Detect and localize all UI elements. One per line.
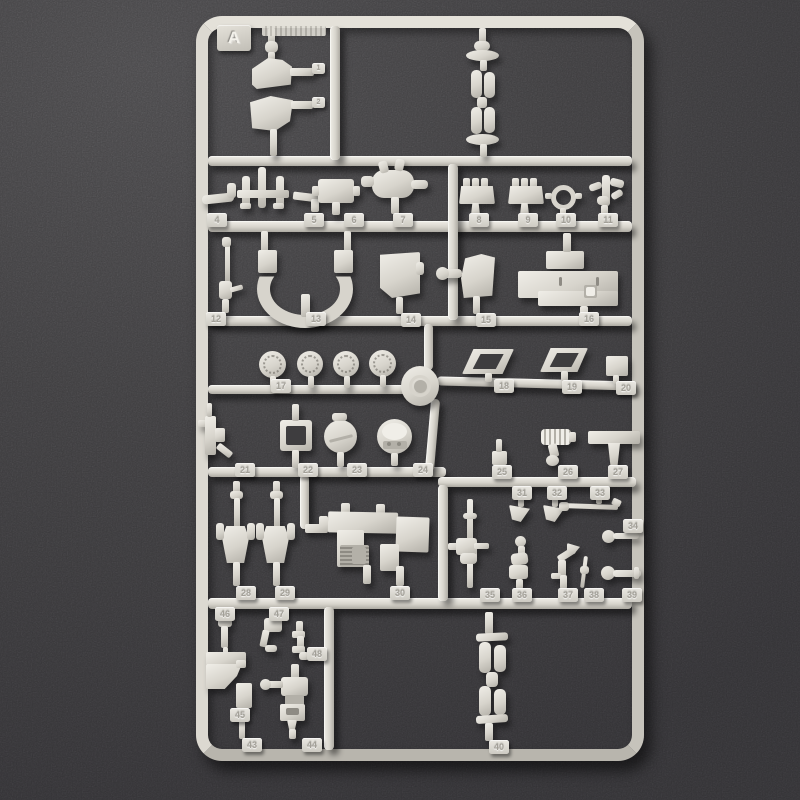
sprue-rail — [424, 324, 433, 370]
part-number-tag: 1 — [312, 63, 325, 74]
molded-text-strip — [262, 26, 326, 36]
part-number-tag: 44 — [302, 738, 322, 752]
part-number-tag: 13 — [306, 312, 326, 326]
sprue-rail — [208, 385, 408, 394]
part-number-tag: 40 — [489, 740, 509, 754]
part-number-tag: 21 — [235, 463, 255, 477]
part-number-tag: 43 — [242, 738, 262, 752]
part-number-tag: 48 — [307, 647, 327, 661]
part-number-tag: 6 — [344, 213, 364, 227]
part-number-tag: 10 — [556, 213, 576, 227]
part-number-tag: 38 — [584, 588, 604, 602]
part-number-tag: 5 — [304, 213, 324, 227]
part-number-tag: 45 — [230, 708, 250, 722]
sprue-rail — [330, 26, 340, 160]
part-number-tag: 4 — [207, 213, 227, 227]
part-number-tag: 11 — [598, 213, 618, 227]
part-number-tag: 23 — [347, 463, 367, 477]
sprue-rail — [438, 485, 448, 601]
part-number-tag: 32 — [547, 486, 567, 500]
part-number-tag: 12 — [206, 312, 226, 326]
part-number-tag: 24 — [413, 463, 433, 477]
part-number-tag: 16 — [579, 312, 599, 326]
part-number-tag: 33 — [590, 486, 610, 500]
part-number-tag: 35 — [480, 588, 500, 602]
sprue-rail — [208, 156, 632, 166]
sprue-rail — [448, 164, 458, 320]
part-number-tag: 7 — [393, 213, 413, 227]
part-number-tag: 29 — [275, 586, 295, 600]
part-number-tag: 34 — [623, 519, 643, 533]
sprue-rail — [300, 475, 309, 529]
part-number-tag: 8 — [469, 213, 489, 227]
sprue-photo-scene: 1245678910111213141516171819202122232425… — [0, 0, 800, 800]
sprue-rail — [324, 607, 334, 750]
part-number-tag: 47 — [269, 607, 289, 621]
part-number-tag: 36 — [512, 588, 532, 602]
part-number-tag: 31 — [512, 486, 532, 500]
part-number-tag: 27 — [608, 465, 628, 479]
part-number-tag: 46 — [215, 607, 235, 621]
part-number-tag: 22 — [298, 463, 318, 477]
part-number-tag: 14 — [401, 313, 421, 327]
part-number-tag: 18 — [494, 379, 514, 393]
part-number-tag: 20 — [616, 381, 636, 395]
part-number-tag: 2 — [312, 97, 325, 108]
part-number-tag: 9 — [518, 213, 538, 227]
part-number-tag: 28 — [236, 586, 256, 600]
part-number-tag: 37 — [558, 588, 578, 602]
sprue-letter: A — [228, 28, 240, 48]
part-number-tag: 17 — [271, 379, 291, 393]
part-number-tag: 25 — [492, 465, 512, 479]
part-number-tag: 26 — [558, 465, 578, 479]
part-number-tag: 15 — [476, 313, 496, 327]
part-number-tag: 19 — [562, 380, 582, 394]
part-number-tag: 39 — [622, 588, 642, 602]
part-number-tag: 30 — [390, 586, 410, 600]
sprue-letter-label: A — [217, 25, 251, 51]
